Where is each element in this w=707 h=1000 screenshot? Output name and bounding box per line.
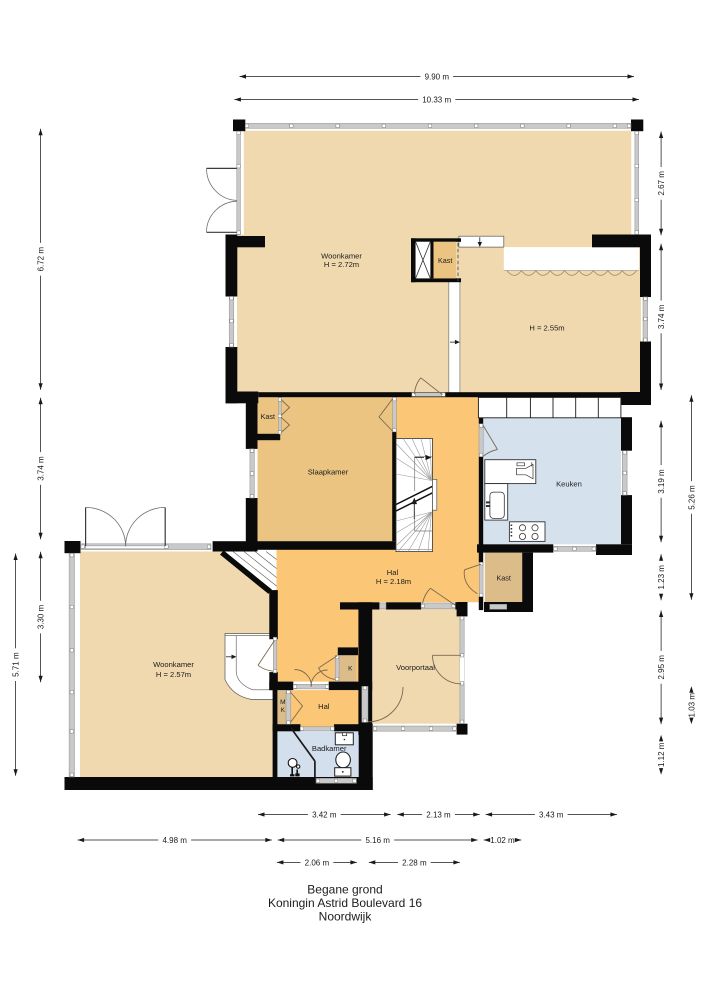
svg-text:H = 2.55m: H = 2.55m (529, 323, 564, 332)
svg-text:2.67 m: 2.67 m (657, 171, 666, 196)
svg-text:Noordwijk: Noordwijk (319, 909, 373, 923)
svg-text:5.26 m: 5.26 m (687, 485, 696, 510)
svg-text:Slaapkamer: Slaapkamer (308, 467, 349, 476)
svg-text:1.02 m: 1.02 m (490, 836, 515, 845)
svg-text:3.30 m: 3.30 m (37, 604, 46, 629)
svg-text:6.72 m: 6.72 m (37, 247, 46, 272)
svg-text:K: K (281, 707, 286, 714)
svg-text:Voorportaal: Voorportaal (396, 663, 435, 672)
svg-text:1.23 m: 1.23 m (657, 565, 666, 590)
svg-text:3.43 m: 3.43 m (539, 810, 564, 819)
svg-text:2.95 m: 2.95 m (657, 655, 666, 680)
svg-text:M: M (280, 699, 285, 706)
svg-text:3.74 m: 3.74 m (657, 304, 666, 329)
svg-text:Woonkamer: Woonkamer (153, 660, 194, 669)
svg-text:3.19 m: 3.19 m (657, 469, 666, 494)
svg-text:4.98 m: 4.98 m (162, 836, 187, 845)
svg-text:5.16 m: 5.16 m (365, 836, 390, 845)
svg-text:3.42 m: 3.42 m (312, 810, 337, 819)
svg-text:Koningin Astrid Boulevard 16: Koningin Astrid Boulevard 16 (268, 896, 422, 910)
svg-text:Keuken: Keuken (556, 479, 582, 488)
svg-text:Badkamer: Badkamer (312, 744, 347, 753)
svg-text:2.13 m: 2.13 m (426, 810, 451, 819)
svg-text:Kast: Kast (261, 412, 275, 421)
svg-text:H = 2.18m: H = 2.18m (376, 577, 411, 586)
svg-text:K: K (348, 665, 353, 672)
svg-text:9.90 m: 9.90 m (425, 72, 450, 81)
svg-text:2.06 m: 2.06 m (305, 858, 330, 867)
svg-text:Hal: Hal (387, 568, 399, 577)
svg-text:2.28 m: 2.28 m (402, 858, 427, 867)
svg-text:Begane grond: Begane grond (307, 882, 382, 896)
svg-text:1.12 m: 1.12 m (657, 742, 666, 767)
svg-text:H = 2.57m: H = 2.57m (156, 670, 191, 679)
svg-text:Hal: Hal (318, 702, 330, 711)
svg-text:1.03 m: 1.03 m (687, 693, 696, 718)
svg-text:H = 2.72m: H = 2.72m (324, 260, 359, 269)
svg-text:Kast: Kast (497, 573, 511, 582)
svg-text:Kast: Kast (438, 256, 452, 265)
svg-text:3.74 m: 3.74 m (37, 456, 46, 481)
svg-text:5.71 m: 5.71 m (12, 652, 21, 677)
svg-text:10.33 m: 10.33 m (422, 95, 451, 104)
